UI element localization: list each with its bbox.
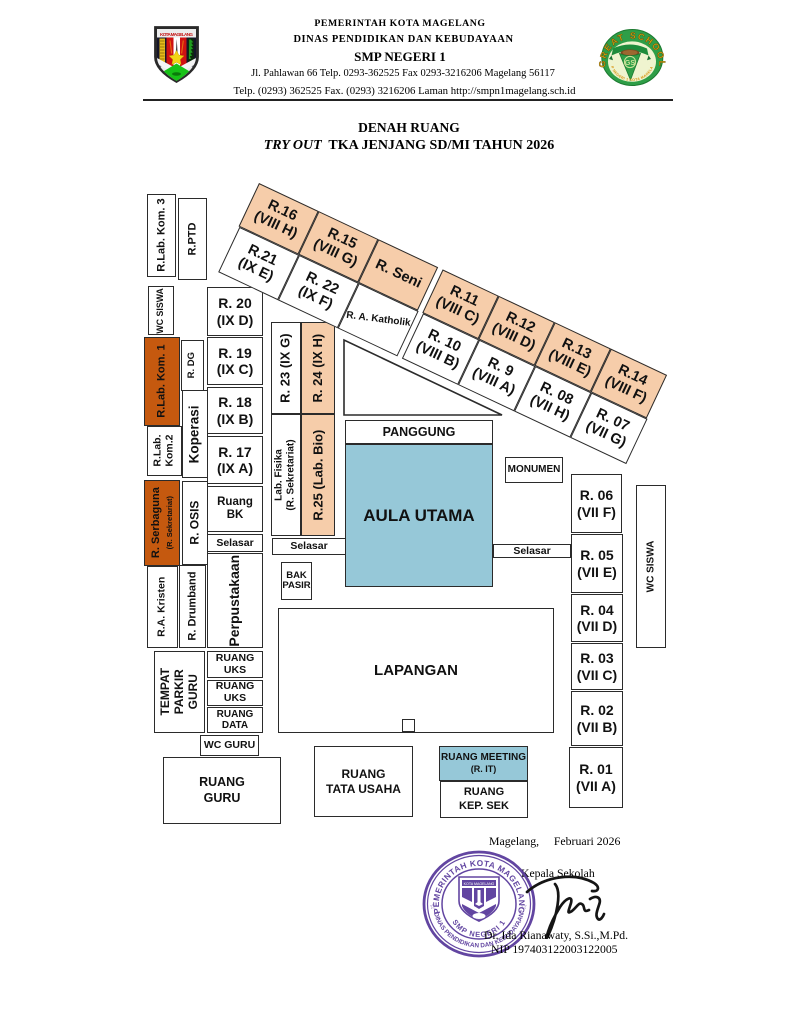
svg-text:KOTA MAGELANG: KOTA MAGELANG bbox=[464, 882, 495, 886]
svg-text:☆: ☆ bbox=[430, 902, 437, 911]
